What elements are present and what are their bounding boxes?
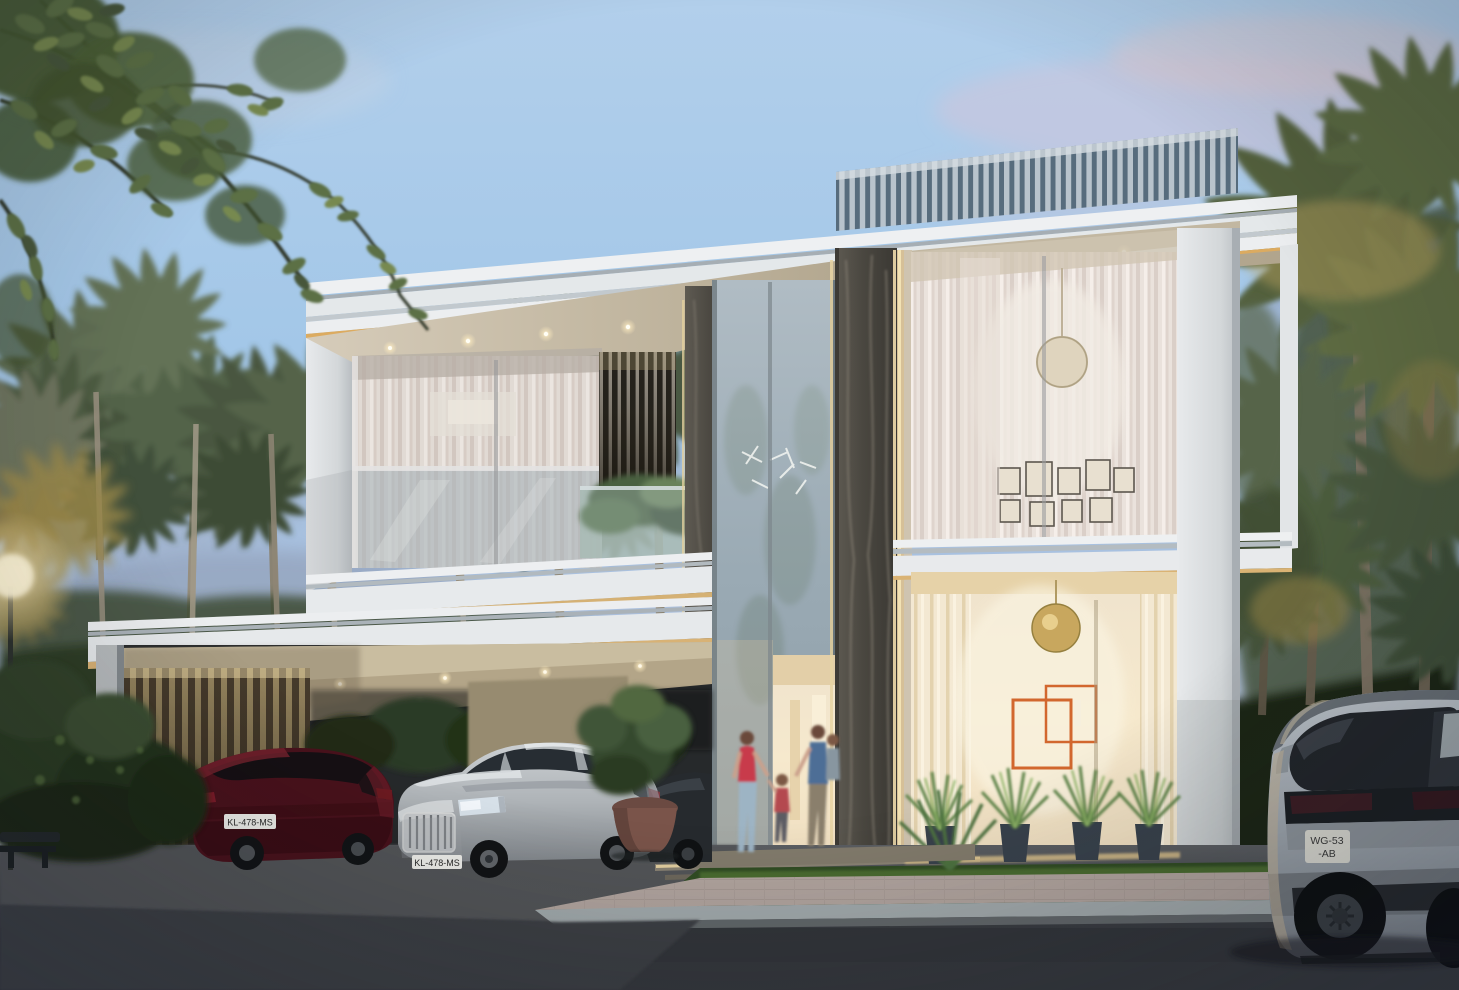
svg-text:-AB: -AB bbox=[1318, 848, 1336, 860]
svg-text:KL-478-MS: KL-478-MS bbox=[227, 818, 273, 828]
svg-text:WG-53: WG-53 bbox=[1310, 835, 1343, 847]
svg-text:KL-478-MS: KL-478-MS bbox=[414, 858, 460, 868]
